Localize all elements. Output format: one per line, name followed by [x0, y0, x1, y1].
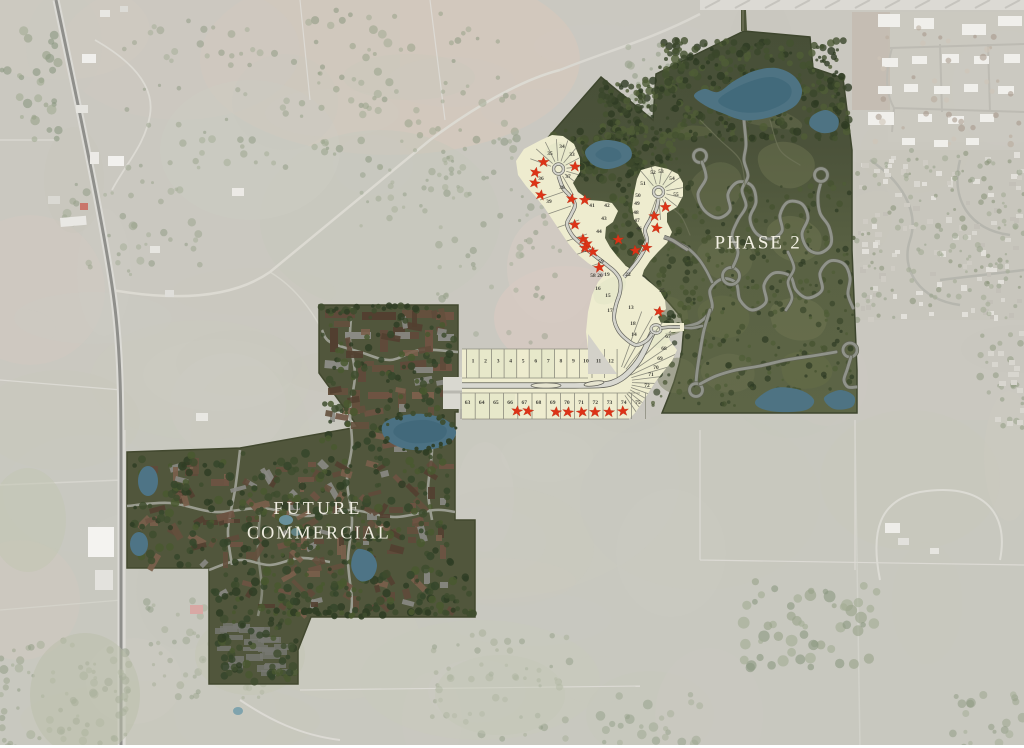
svg-text:42: 42: [604, 203, 610, 209]
svg-text:67: 67: [522, 400, 528, 406]
svg-text:53: 53: [658, 169, 664, 175]
svg-text:13: 13: [628, 305, 634, 311]
svg-text:48: 48: [633, 210, 639, 216]
svg-text:68: 68: [661, 346, 667, 352]
svg-text:52: 52: [650, 170, 656, 176]
svg-text:22: 22: [625, 272, 631, 278]
svg-text:PHASE 2: PHASE 2: [714, 233, 801, 254]
svg-text:12: 12: [608, 359, 614, 365]
svg-text:9: 9: [572, 359, 575, 365]
svg-text:8: 8: [559, 359, 562, 365]
svg-text:50: 50: [635, 193, 641, 199]
svg-text:34: 34: [559, 144, 565, 150]
svg-text:67: 67: [665, 334, 671, 340]
svg-text:14: 14: [631, 332, 637, 338]
svg-text:51: 51: [640, 181, 646, 187]
svg-text:37: 37: [565, 174, 571, 180]
svg-text:2: 2: [484, 359, 487, 365]
svg-text:33: 33: [569, 152, 575, 158]
svg-text:71: 71: [578, 400, 584, 406]
svg-text:10: 10: [583, 359, 589, 365]
svg-text:72: 72: [644, 383, 650, 389]
svg-text:68: 68: [536, 400, 542, 406]
svg-text:25: 25: [659, 288, 665, 294]
svg-text:19: 19: [604, 272, 610, 278]
svg-text:72: 72: [593, 400, 599, 406]
svg-text:74: 74: [621, 400, 627, 406]
svg-text:3: 3: [497, 359, 500, 365]
svg-text:69: 69: [657, 356, 663, 362]
svg-text:44: 44: [596, 229, 602, 235]
svg-text:39: 39: [546, 199, 552, 205]
svg-text:46: 46: [636, 226, 642, 232]
svg-text:54: 54: [669, 176, 675, 182]
svg-text:73: 73: [607, 400, 613, 406]
svg-text:1: 1: [472, 359, 475, 365]
svg-text:65: 65: [493, 400, 499, 406]
svg-text:COMMERCIAL: COMMERCIAL: [247, 523, 391, 543]
svg-text:43: 43: [601, 216, 607, 222]
svg-text:41: 41: [589, 203, 595, 209]
svg-text:49: 49: [634, 201, 640, 207]
svg-text:5: 5: [522, 359, 525, 365]
svg-text:47: 47: [634, 218, 640, 224]
svg-text:6: 6: [534, 359, 537, 365]
svg-text:55: 55: [673, 192, 679, 198]
svg-text:11: 11: [596, 359, 601, 365]
svg-text:70: 70: [564, 400, 570, 406]
svg-text:20: 20: [597, 273, 603, 279]
svg-text:71: 71: [648, 372, 654, 378]
svg-text:7: 7: [547, 359, 550, 365]
svg-text:FUTURE: FUTURE: [273, 498, 362, 518]
svg-text:16: 16: [595, 286, 601, 292]
svg-text:36: 36: [538, 176, 544, 182]
svg-text:75: 75: [635, 400, 641, 406]
svg-text:17: 17: [607, 308, 613, 314]
svg-text:4: 4: [509, 359, 512, 365]
svg-text:38: 38: [559, 185, 565, 191]
svg-text:70: 70: [653, 365, 659, 371]
svg-text:63: 63: [465, 400, 471, 406]
svg-text:35: 35: [547, 151, 553, 157]
svg-text:64: 64: [479, 400, 485, 406]
svg-text:15: 15: [605, 293, 611, 299]
svg-text:58: 58: [590, 273, 596, 279]
svg-text:18: 18: [630, 321, 636, 327]
svg-text:69: 69: [550, 400, 556, 406]
svg-text:66: 66: [507, 400, 513, 406]
